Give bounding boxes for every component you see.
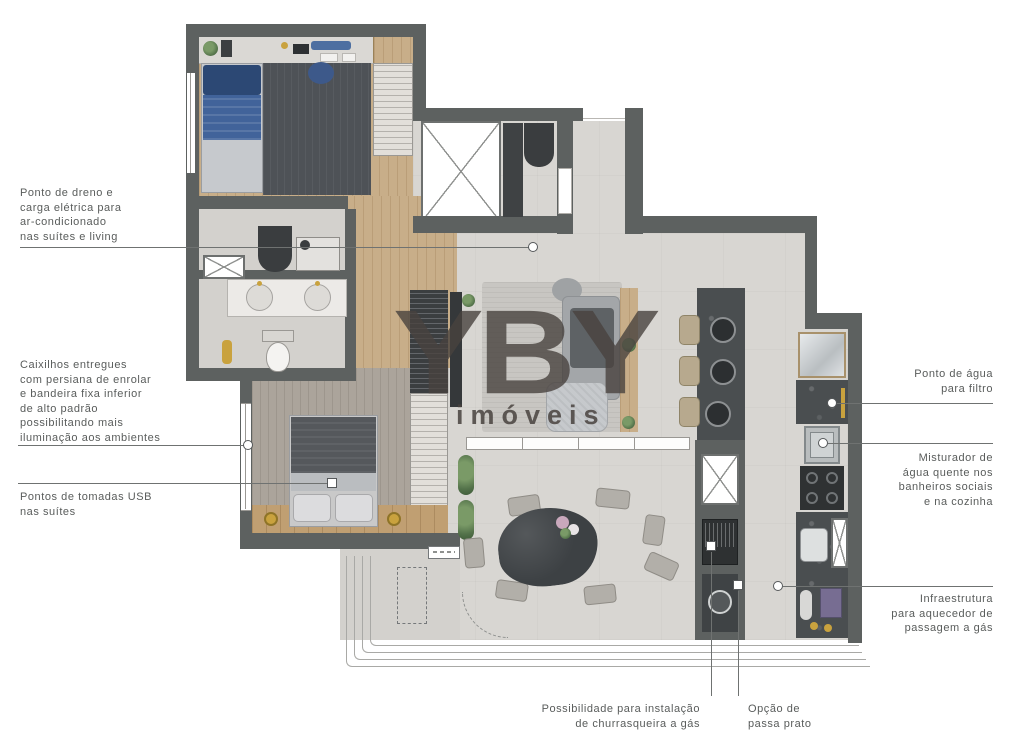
island-plate-3	[705, 401, 731, 427]
leader-windows	[18, 445, 244, 446]
annotation-line: carga elétrica para	[20, 201, 122, 216]
burner-1	[806, 472, 818, 484]
annotation-line: Infraestrutura	[891, 592, 993, 607]
duct-shaft-small	[203, 255, 245, 279]
annotation-heater: Infraestrutura para aquecedor de passage…	[891, 592, 993, 636]
suite2-beanbag	[308, 62, 334, 84]
wall-below-shaft	[413, 216, 557, 233]
leader-usb	[18, 483, 328, 484]
annotation-line: de alto padrão	[20, 402, 160, 417]
bath-faucet-left	[257, 281, 262, 286]
annotation-windows: Caixilhos entregues com persiana de enro…	[20, 358, 160, 445]
burner-4	[826, 492, 838, 504]
glass-door-mullion-2	[578, 438, 579, 449]
kitchen-stool-2	[679, 356, 700, 386]
bath-sink-left	[246, 284, 273, 311]
suite2-wardrobe	[373, 63, 413, 156]
wc-toilet	[524, 123, 554, 167]
bath-faucet-right	[315, 281, 320, 286]
terrace-planter-green	[458, 455, 474, 495]
bath-toilet-dark	[258, 226, 292, 272]
suite2-desk-plant	[203, 41, 218, 56]
annotation-line: Misturador de	[899, 451, 993, 466]
wc-door-opening	[558, 168, 572, 214]
glass-door-mullion-3	[634, 438, 635, 449]
leader-barbecue	[711, 552, 712, 696]
marker-windows-circle	[243, 440, 253, 450]
leader-ac-drain	[20, 247, 530, 248]
burner-2	[826, 472, 838, 484]
terrace-planter-green-2	[458, 500, 474, 540]
annotation-line: e na cozinha	[899, 495, 993, 510]
annotation-line: água quente nos	[899, 466, 993, 481]
annotation-line: passagem a gás	[891, 621, 993, 636]
dining-chair-2	[595, 487, 629, 507]
marker-ac-drain-circle	[528, 242, 538, 252]
bath-sink-right	[304, 284, 331, 311]
suite2-bed-pillows	[203, 65, 261, 95]
annotation-mixer: Misturador de água quente nos banheiros …	[899, 451, 993, 509]
table-flower-1	[556, 516, 569, 529]
annotation-line: nas suítes e living	[20, 230, 122, 245]
leader-mixer	[828, 443, 993, 444]
wall-master-bottom	[240, 533, 460, 549]
suite2-cabinet	[373, 37, 413, 63]
annotation-line: Opção de	[748, 702, 812, 717]
suite2-window	[187, 73, 195, 173]
glass-door-mullion-1	[522, 438, 523, 449]
bath-toilet-white-tank	[262, 330, 294, 342]
annotation-line: ar-condicionado	[20, 215, 122, 230]
marker-heater-circle	[773, 581, 783, 591]
burner-3	[806, 492, 818, 504]
suite2-desk-frame	[221, 40, 232, 57]
island-plate-1	[710, 317, 736, 343]
leader-water-filter	[836, 403, 993, 404]
annotation-line: banheiros sociais	[899, 480, 993, 495]
leader-heater	[783, 586, 993, 587]
master-lamp-left	[264, 512, 278, 526]
suite2-notepad	[342, 53, 356, 62]
floorplan-page: YBY imóveis Ponto de dreno e carga elétr…	[0, 0, 1024, 739]
annotation-line: para filtro	[914, 382, 993, 397]
annotation-line: possibilitando mais	[20, 416, 160, 431]
suite2-monitor	[311, 41, 351, 50]
marker-water-filter-circle	[827, 398, 837, 408]
island-plate-2	[710, 359, 736, 385]
suite2-desk-gold-dot	[281, 42, 288, 49]
annotation-line: Caixilhos entregues	[20, 358, 160, 373]
master-bed-pillow-left	[293, 494, 331, 522]
wall-suite2-right	[413, 24, 426, 121]
master-window-glassline	[245, 403, 246, 509]
master-bed-pillow-right	[335, 494, 373, 522]
annotation-line: Ponto de água	[914, 367, 993, 382]
annotation-line: Ponto de dreno e	[20, 186, 122, 201]
suite2-window-glassline	[190, 73, 191, 173]
annotation-line: para aquecedor de	[891, 607, 993, 622]
annotation-pass-through: Opção de passa prato	[748, 702, 812, 731]
annotation-line: e bandeira fixa inferior	[20, 387, 160, 402]
annotation-line: passa prato	[748, 717, 812, 732]
elevator-shaft	[421, 121, 501, 222]
master-lamp-right	[387, 512, 401, 526]
fridge	[798, 332, 846, 378]
wall-bath-left	[186, 209, 199, 381]
annotation-ac-drain: Ponto de dreno e carga elétrica para ar-…	[20, 186, 122, 244]
cooktop	[800, 466, 844, 510]
bath-toilet-white-bowl	[266, 342, 290, 372]
annotation-line: Pontos de tomadas USB	[20, 490, 152, 505]
wc-shower-strip	[503, 123, 523, 217]
terrace-railing-4	[370, 556, 859, 646]
suite2-bed-blanket	[203, 95, 261, 140]
suite2-laptop	[293, 44, 309, 54]
plan-label-dashes	[433, 551, 455, 553]
master-bed-blanket	[291, 417, 376, 473]
marker-barbecue-square	[706, 541, 716, 551]
annotation-line: iluminação aos ambientes	[20, 431, 160, 446]
wall-suite2-bottom	[186, 196, 348, 209]
bath-shower-head	[300, 240, 310, 250]
table-flower-3	[560, 528, 571, 539]
exterior-cutout-right	[817, 108, 848, 313]
marker-pass-through-square	[733, 580, 743, 590]
annotation-barbecue: Possibilidade para instalação de churras…	[542, 702, 700, 731]
marker-mixer-circle	[818, 438, 828, 448]
kitchen-stool-3	[679, 397, 700, 427]
annotation-water-filter: Ponto de água para filtro	[914, 367, 993, 396]
chair-shape	[642, 514, 666, 546]
entry-door-opening	[583, 108, 625, 121]
bath-towel-stand	[222, 340, 232, 364]
watermark-subtitle-text: imóveis	[456, 400, 606, 431]
master-window	[241, 403, 251, 511]
annotation-usb: Pontos de tomadas USB nas suítes	[20, 490, 152, 519]
wall-top-right	[633, 216, 817, 233]
annotation-line: Possibilidade para instalação	[542, 702, 700, 717]
dumbwaiter-shaft	[701, 454, 739, 505]
annotation-line: de churrasqueira a gás	[542, 717, 700, 732]
leader-pass-through	[738, 591, 739, 696]
entry-door-threshold	[583, 118, 625, 119]
annotation-line: nas suítes	[20, 505, 152, 520]
marker-usb-square	[327, 478, 337, 488]
annotation-line: com persiana de enrolar	[20, 373, 160, 388]
suite2-keyboard	[320, 53, 338, 62]
watermark-brand-text: YBY	[393, 292, 655, 412]
wall-jog-vertical	[805, 216, 817, 313]
kitchen-stool-1	[679, 315, 700, 345]
chair-shape	[595, 487, 631, 509]
wall-suite2-top	[186, 24, 426, 38]
dining-chair-3	[642, 514, 664, 544]
